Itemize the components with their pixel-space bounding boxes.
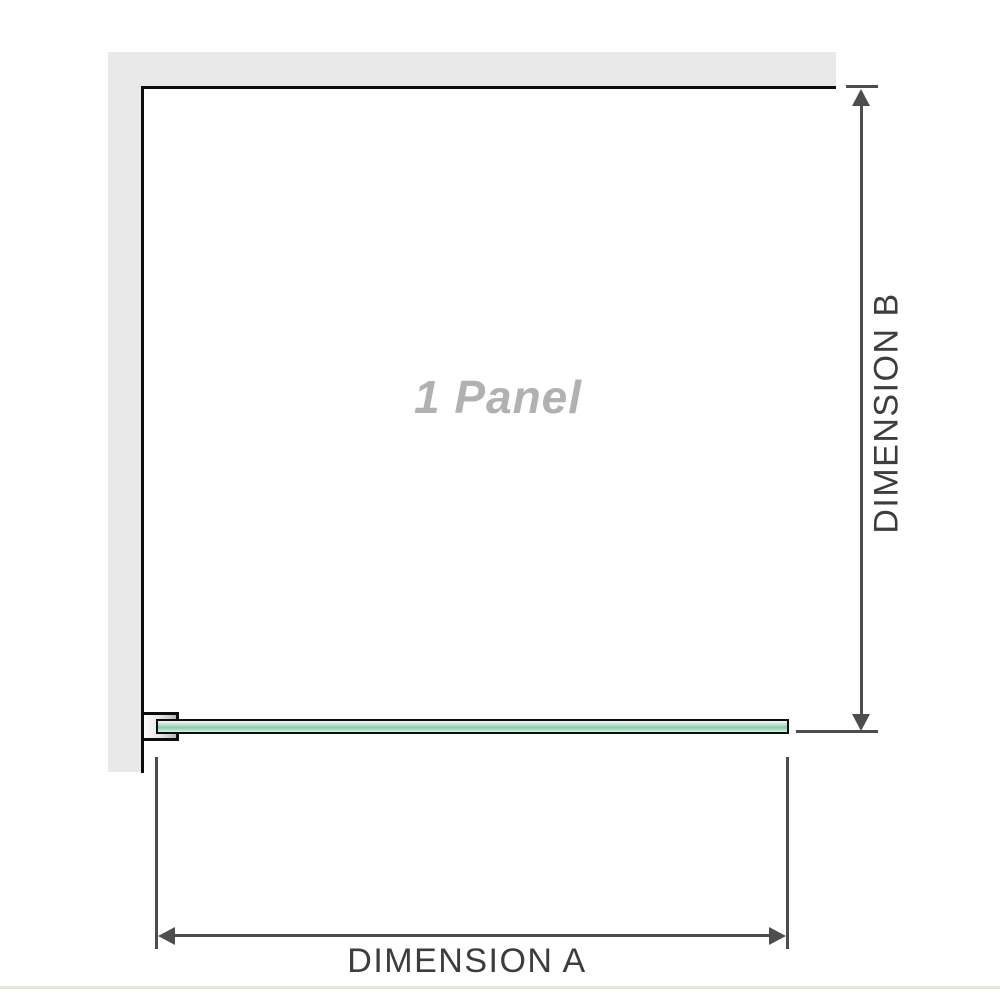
bottom-divider: [0, 986, 1000, 989]
glass-panel: [156, 719, 789, 734]
dimension-a-right-extension: [786, 757, 789, 949]
panel-count-label: 1 Panel: [348, 370, 648, 424]
panel-dimension-diagram: 1 Panel DIMENSION B DIMENSION A: [0, 0, 1000, 1000]
wall-segment-top: [108, 52, 836, 86]
arrow-right-icon: [769, 927, 786, 945]
dimension-a-label: DIMENSION A: [317, 942, 617, 981]
dimension-a-line: [168, 934, 776, 937]
arrow-down-icon: [852, 714, 870, 731]
arrow-up-icon: [852, 89, 870, 106]
dimension-b-label: DIMENSION B: [868, 292, 907, 533]
wall-segment-left: [108, 52, 141, 772]
arrow-left-icon: [158, 927, 175, 945]
dimension-b-line: [860, 95, 863, 723]
dimension-b-top-tick: [846, 85, 878, 88]
enclosure-outline: [141, 86, 836, 773]
dimension-a-left-extension: [155, 757, 158, 949]
